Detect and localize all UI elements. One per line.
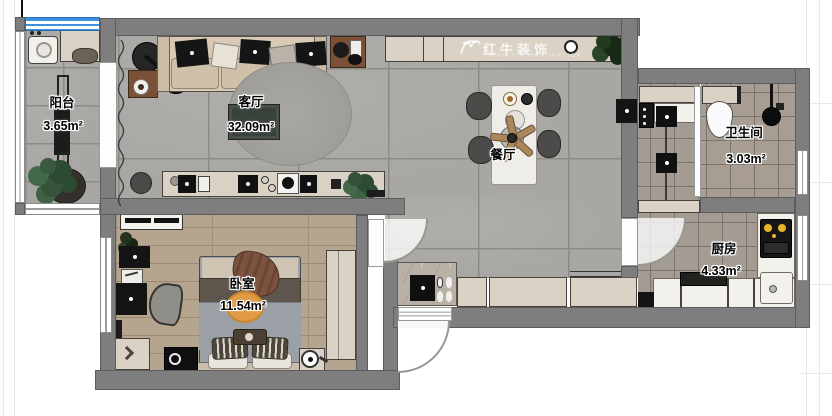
label-dining-name: 餐厅 <box>473 148 533 162</box>
desk-chair-small <box>348 54 362 65</box>
storage-cabinet <box>457 277 487 307</box>
storage-cabinet <box>570 277 637 307</box>
wall-bedroom-bottom <box>95 370 400 390</box>
hallway-washer <box>639 103 654 128</box>
label-bedroom-area: 11.54m² <box>203 299 283 313</box>
kitchen-door-leaf <box>621 218 638 266</box>
cabinet-divider <box>443 36 444 62</box>
shoes <box>437 277 443 288</box>
speaker <box>238 175 258 193</box>
wall-clock <box>564 40 578 54</box>
wall-top <box>100 18 640 36</box>
wall-bottom <box>393 307 805 328</box>
wardrobe <box>326 250 356 360</box>
photo-frame <box>198 176 210 192</box>
shower-head <box>762 107 781 126</box>
dining-plant <box>596 34 611 49</box>
guide-line <box>3 0 4 416</box>
wall-niche-cabinet <box>616 99 637 123</box>
mirror-center <box>308 357 313 362</box>
wall-bathroom-top <box>638 68 810 84</box>
stove-panel <box>763 242 789 254</box>
speaker <box>178 175 196 193</box>
plate-item <box>507 96 513 102</box>
decor-ring <box>261 176 269 184</box>
wall-right-outer <box>795 68 810 328</box>
dining-chair <box>466 92 492 120</box>
tv-stool <box>130 172 152 194</box>
decor-frame <box>367 190 385 197</box>
dining-chair <box>537 89 561 117</box>
sofa-pillow-black <box>239 39 271 65</box>
entry-door-swing <box>398 321 450 373</box>
hallway-cabinet <box>639 86 695 103</box>
label-bathroom-area: 3.03m² <box>706 152 786 166</box>
bedroom-window <box>100 237 112 333</box>
nightstand-lamp <box>169 353 181 365</box>
shower-pipe <box>770 84 773 108</box>
decor-ring <box>268 184 276 192</box>
label-bedroom-name: 卧室 <box>212 277 272 291</box>
sofa-pillow-white <box>210 42 239 69</box>
counter-divider <box>727 278 729 308</box>
wall-bathroom-bottom <box>700 197 795 213</box>
balcony-sink-items <box>72 48 98 64</box>
label-living-area: 32.09m² <box>211 120 291 134</box>
shelf-divider <box>737 86 741 104</box>
hallway-stool <box>656 153 677 173</box>
bathroom-window <box>797 150 808 195</box>
ac-vent <box>154 218 179 223</box>
wardrobe-door-line <box>338 250 339 360</box>
washer-knobs <box>643 108 646 111</box>
plant-pot <box>46 168 86 204</box>
label-kitchen-name: 厨房 <box>694 242 754 256</box>
balcony-window-left <box>15 31 25 203</box>
label-kitchen-area: 4.33m² <box>681 264 761 278</box>
detail-dots <box>30 31 34 35</box>
stove-burner <box>778 224 786 232</box>
speaker <box>300 175 317 193</box>
kitchen-window <box>797 215 808 281</box>
bathroom-sliding-door <box>694 86 701 197</box>
wall-corner <box>15 17 25 31</box>
balcony-plant <box>40 158 56 174</box>
wall-living-south <box>100 198 405 215</box>
tv-plant <box>348 172 362 186</box>
sofa-pillow-black <box>175 38 210 67</box>
desk-chair <box>333 42 349 58</box>
label-balcony-area: 3.65m² <box>23 119 103 133</box>
sofa-armrest-left <box>157 36 170 92</box>
guide-line <box>800 373 832 374</box>
decor-black <box>331 179 341 189</box>
balcony-window-blue <box>25 17 100 31</box>
balcony-sliding-door <box>99 62 117 168</box>
label-balcony-name: 阳台 <box>32 96 92 110</box>
faucet <box>769 285 777 293</box>
wall-corner <box>15 203 25 215</box>
kitchen-top-cabinet <box>638 200 700 213</box>
storage-cabinet <box>489 277 567 307</box>
desk-black <box>114 283 147 315</box>
fan-hub <box>507 133 517 143</box>
bedroom-door-leaf <box>368 219 384 267</box>
dimension-tick <box>21 0 23 17</box>
wall-dining-east-stub <box>621 266 638 278</box>
dining-chair <box>537 130 561 158</box>
tray-item <box>138 84 144 90</box>
tv-lens <box>282 177 294 189</box>
bed-tray-item <box>245 333 253 341</box>
wall-bedroom-east <box>356 215 368 372</box>
bedroom-plant <box>120 232 132 244</box>
ac-vent <box>125 218 151 223</box>
kitchen-corner-unit <box>638 292 654 308</box>
floor-plan: 红牛装饰 HONG NIU DECORATION 阳台 3.65m² 客厅 32… <box>0 0 832 416</box>
desk-black <box>119 246 150 268</box>
shoe-cabinet <box>410 275 435 301</box>
washing-machine-drum <box>36 42 52 58</box>
stove-knob <box>772 234 776 238</box>
desk-paper <box>121 269 143 284</box>
counter-divider <box>753 278 755 308</box>
stove-burner <box>764 224 772 232</box>
label-bathroom-name: 卫生间 <box>704 126 784 140</box>
label-living-name: 客厅 <box>221 95 281 109</box>
hallway-stool <box>656 106 677 127</box>
balcony-window-bottom <box>25 203 100 215</box>
guide-line <box>819 0 820 416</box>
bowl-dark <box>521 93 533 105</box>
entry-door-leaf <box>398 307 452 321</box>
cabinet-divider <box>423 36 424 62</box>
watermark-subtitle: HONG NIU DECORATION <box>485 53 582 59</box>
